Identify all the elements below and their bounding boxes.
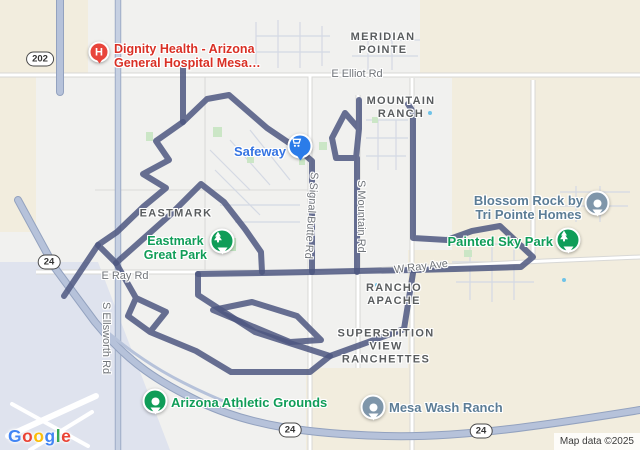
grocery-pin-safeway[interactable] bbox=[288, 134, 313, 159]
route-shield-24-southeast: 24 bbox=[470, 424, 493, 439]
tree-icon bbox=[212, 231, 225, 244]
poi-label-dignity-health[interactable]: Dignity Health - Arizona General Hospita… bbox=[114, 42, 261, 70]
dot-icon bbox=[369, 403, 377, 411]
road-label-e-ray-rd: E Ray Rd bbox=[101, 270, 148, 282]
place-pin-mesa-wash-ranch[interactable] bbox=[361, 395, 386, 420]
area-label-superstition-view-ranchettes: SUPERSTITION VIEW RANCHETTES bbox=[338, 328, 435, 367]
poi-label-blossom-rock[interactable]: Blossom Rock by Tri Pointe Homes bbox=[474, 194, 583, 222]
google-logo[interactable]: Google bbox=[8, 426, 71, 447]
road-label-e-elliot-rd: E Elliot Rd bbox=[331, 68, 382, 80]
route-shield-24-west: 24 bbox=[38, 255, 61, 270]
route-shield-202: 202 bbox=[26, 52, 54, 67]
poi-label-eastmark-great-park[interactable]: Eastmark Great Park bbox=[144, 234, 207, 262]
area-label-eastmark: EASTMARK bbox=[140, 208, 213, 221]
area-label-mountain-ranch: MOUNTAIN RANCH bbox=[367, 95, 436, 121]
map-canvas[interactable]: MERIDIAN POINTE MOUNTAIN RANCH EASTMARK … bbox=[0, 0, 640, 450]
park-pin-painted-sky[interactable] bbox=[556, 228, 581, 253]
park-pin-eastmark-great-park[interactable] bbox=[210, 229, 235, 254]
hospital-pin[interactable]: H bbox=[89, 42, 110, 63]
sports-pin-arizona-athletic[interactable] bbox=[143, 389, 168, 414]
business-pin-blossom-rock[interactable] bbox=[585, 191, 610, 216]
poi-label-painted-sky-park[interactable]: Painted Sky Park bbox=[448, 235, 554, 249]
road-label-s-ellsworth-rd: S Ellsworth Rd bbox=[100, 302, 111, 374]
route-shield-24-south: 24 bbox=[279, 423, 302, 438]
area-label-rancho-apache: RANCHO APACHE bbox=[366, 282, 422, 308]
road-label-s-mountain-rd: S Mountain Rd bbox=[355, 180, 366, 253]
dot-icon bbox=[151, 397, 159, 405]
poi-label-safeway[interactable]: Safeway bbox=[234, 145, 286, 159]
poi-label-arizona-athletic-grounds[interactable]: Arizona Athletic Grounds bbox=[171, 396, 327, 410]
poi-label-mesa-wash-ranch[interactable]: Mesa Wash Ranch bbox=[389, 401, 503, 415]
dot-icon bbox=[593, 199, 601, 207]
area-label-meridian-pointe: MERIDIAN POINTE bbox=[351, 31, 416, 57]
hospital-h-icon: H bbox=[95, 46, 103, 58]
tree-icon bbox=[558, 230, 571, 243]
cart-icon bbox=[290, 136, 303, 149]
map-attribution: Map data ©2025 bbox=[554, 433, 640, 450]
